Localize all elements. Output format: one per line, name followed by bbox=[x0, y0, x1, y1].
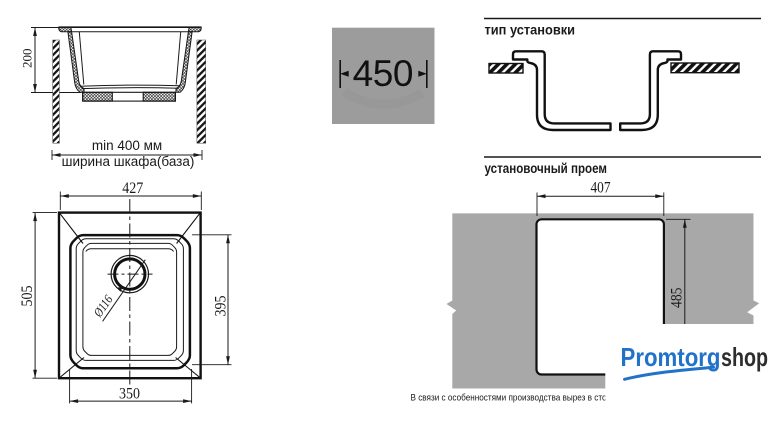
svg-text:350: 350 bbox=[119, 386, 140, 403]
svg-text:485: 485 bbox=[669, 287, 686, 308]
svg-text:тип установки: тип установки bbox=[485, 22, 576, 38]
svg-text:505: 505 bbox=[19, 286, 36, 307]
svg-text:450: 450 bbox=[353, 53, 413, 94]
svg-text:427: 427 bbox=[122, 180, 143, 197]
svg-text:407: 407 bbox=[591, 180, 611, 197]
svg-text:min 400 мм: min 400 мм bbox=[92, 138, 162, 153]
svg-text:ширина шкафа(база): ширина шкафа(база) bbox=[62, 154, 195, 169]
svg-text:shop: shop bbox=[721, 342, 768, 372]
svg-text:395: 395 bbox=[213, 296, 230, 317]
svg-text:Ø116: Ø116 bbox=[90, 292, 116, 320]
svg-text:В связи с особенностями произв: В связи с особенностями производства выр… bbox=[411, 393, 607, 403]
svg-text:установочный проем: установочный проем bbox=[485, 160, 608, 176]
svg-text:200: 200 bbox=[20, 49, 35, 69]
